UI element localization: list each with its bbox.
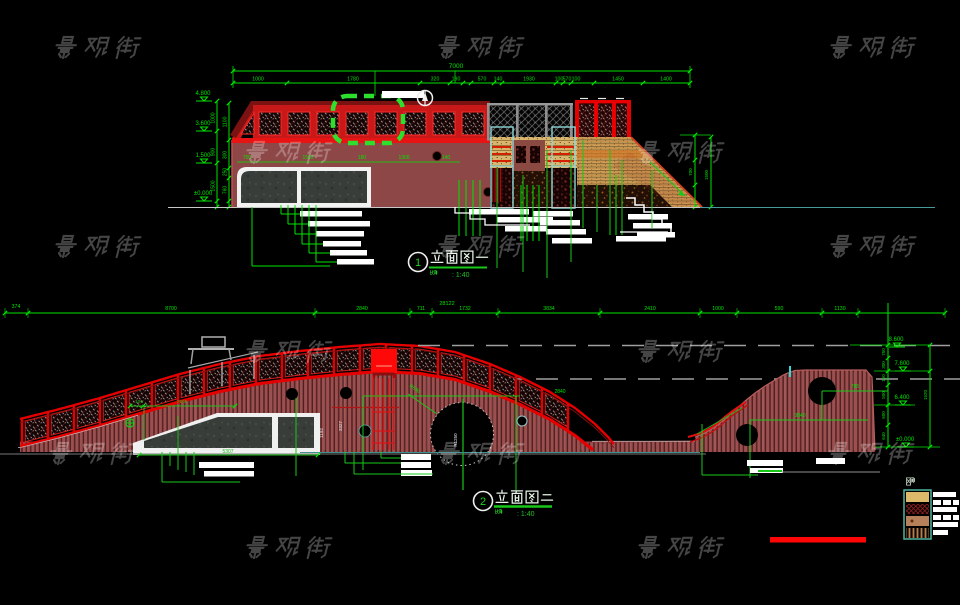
svg-text:1: 1 (415, 257, 421, 269)
svg-text:3840: 3840 (794, 413, 805, 419)
svg-text:2410: 2410 (644, 306, 656, 312)
svg-text:100: 100 (135, 399, 143, 405)
svg-text:: 1:40: : 1:40 (452, 272, 470, 279)
svg-text:8700: 8700 (165, 306, 177, 312)
svg-text:3.600: 3.600 (195, 121, 211, 127)
svg-text:5307: 5307 (222, 449, 233, 455)
svg-text:100: 100 (572, 77, 581, 83)
svg-text:1130: 1130 (834, 306, 845, 312)
svg-text:: 1:40: : 1:40 (517, 511, 535, 518)
svg-text:320: 320 (431, 77, 440, 83)
svg-text:300: 300 (881, 361, 886, 369)
svg-text:140: 140 (494, 77, 503, 83)
svg-text:2840: 2840 (554, 389, 565, 395)
svg-text:28122: 28122 (439, 301, 454, 307)
svg-text:1000: 1000 (211, 112, 217, 123)
svg-text:711: 711 (417, 306, 425, 312)
svg-text:570: 570 (563, 77, 572, 83)
svg-text:1000: 1000 (252, 77, 264, 83)
svg-text:1500: 1500 (211, 180, 217, 191)
svg-text:190: 190 (452, 77, 461, 83)
svg-text:8.600: 8.600 (888, 337, 904, 343)
svg-text:3834: 3834 (543, 306, 555, 312)
svg-text:374: 374 (12, 304, 21, 310)
svg-text:760: 760 (223, 186, 229, 195)
svg-text:1520: 1520 (923, 389, 928, 400)
svg-text:2: 2 (480, 496, 486, 508)
svg-text:1300: 1300 (398, 155, 409, 161)
svg-text:300: 300 (223, 151, 229, 160)
svg-text:1000: 1000 (712, 306, 724, 312)
svg-text:150: 150 (881, 374, 886, 382)
svg-text:590: 590 (775, 306, 784, 312)
svg-text:7.600: 7.600 (894, 361, 910, 367)
svg-text:4.800: 4.800 (195, 91, 211, 97)
svg-text:900: 900 (211, 148, 217, 157)
svg-text:570: 570 (478, 77, 487, 83)
svg-text:2840: 2840 (356, 306, 368, 312)
svg-text:140: 140 (442, 155, 451, 161)
svg-text:1780: 1780 (347, 77, 359, 83)
svg-text:1192: 1192 (319, 428, 324, 438)
svg-text:±0.000: ±0.000 (896, 437, 915, 443)
svg-text:1450: 1450 (612, 77, 624, 83)
svg-text:2965: 2965 (177, 399, 188, 405)
svg-text:1732: 1732 (459, 306, 471, 312)
svg-text:7000: 7000 (449, 63, 464, 70)
svg-text:750: 750 (881, 348, 886, 356)
svg-text:500: 500 (881, 391, 886, 399)
svg-text:1100: 1100 (223, 116, 229, 127)
svg-text:600: 600 (881, 411, 886, 419)
svg-text:1400: 1400 (660, 77, 672, 83)
svg-text:6.400: 6.400 (894, 395, 910, 401)
svg-text:250: 250 (223, 168, 229, 177)
svg-text:1500: 1500 (704, 169, 709, 180)
svg-text:640: 640 (881, 432, 886, 440)
svg-text:700: 700 (688, 168, 693, 176)
svg-text:1.500: 1.500 (195, 153, 211, 159)
svg-text:180: 180 (358, 155, 367, 161)
svg-text:785: 785 (851, 384, 860, 390)
svg-text:3327: 3327 (338, 420, 343, 431)
svg-text:1930: 1930 (523, 77, 535, 83)
